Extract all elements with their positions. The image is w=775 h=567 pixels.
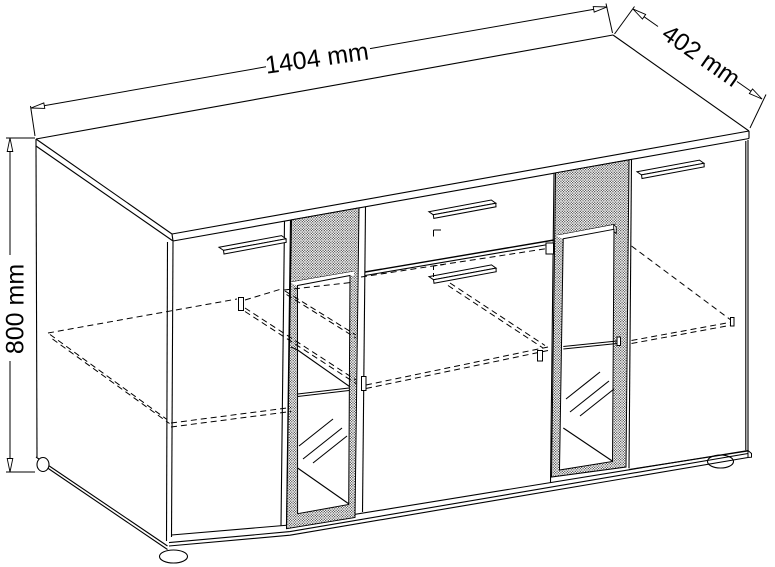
svg-text:800 mm: 800 mm — [2, 264, 30, 354]
